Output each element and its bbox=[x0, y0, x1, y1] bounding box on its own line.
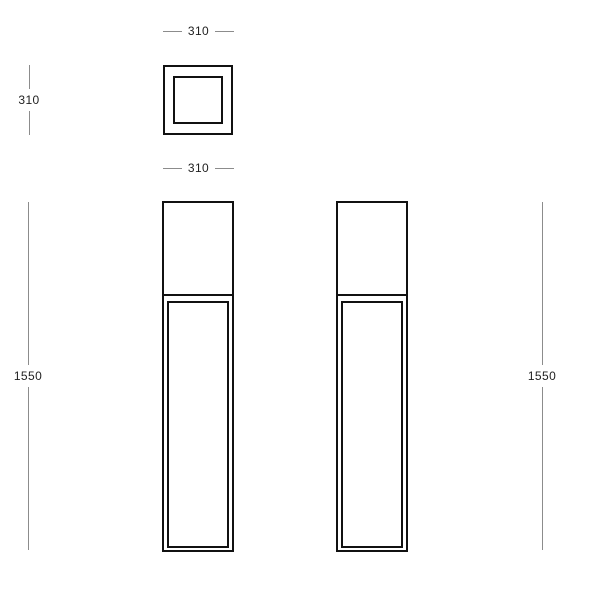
side-view-head-divider bbox=[336, 294, 408, 296]
dimension-line-segment bbox=[215, 168, 234, 169]
dimension-line-segment bbox=[163, 168, 182, 169]
top-view-inner-square bbox=[173, 76, 223, 124]
front-view-inner-panel bbox=[167, 301, 229, 548]
dimension-label: 1550 bbox=[14, 365, 42, 387]
top-view-height-dimension: 310 bbox=[17, 65, 41, 135]
top-view-width-dimension: 310 bbox=[163, 24, 234, 38]
front-view-height-dimension: 1550 bbox=[13, 202, 43, 550]
side-view-inner-panel bbox=[341, 301, 403, 548]
top-view-width-dimension-bottom: 310 bbox=[163, 161, 234, 175]
dimension-line-segment bbox=[29, 111, 30, 135]
dimension-label: 310 bbox=[182, 162, 215, 174]
dimension-line-segment bbox=[28, 387, 29, 550]
dimension-line-segment bbox=[542, 387, 543, 550]
dimension-line-segment bbox=[163, 31, 182, 32]
dimension-line-segment bbox=[28, 202, 29, 365]
dimension-label: 1550 bbox=[528, 365, 556, 387]
dimension-line-segment bbox=[215, 31, 234, 32]
dimension-line-segment bbox=[542, 202, 543, 365]
front-view-head-divider bbox=[162, 294, 234, 296]
dimension-label: 310 bbox=[18, 89, 39, 111]
dimension-label: 310 bbox=[182, 25, 215, 37]
dimension-drawing-canvas: 310 310 310 1550 1550 bbox=[0, 0, 600, 599]
side-view-height-dimension: 1550 bbox=[527, 202, 557, 550]
dimension-line-segment bbox=[29, 65, 30, 89]
